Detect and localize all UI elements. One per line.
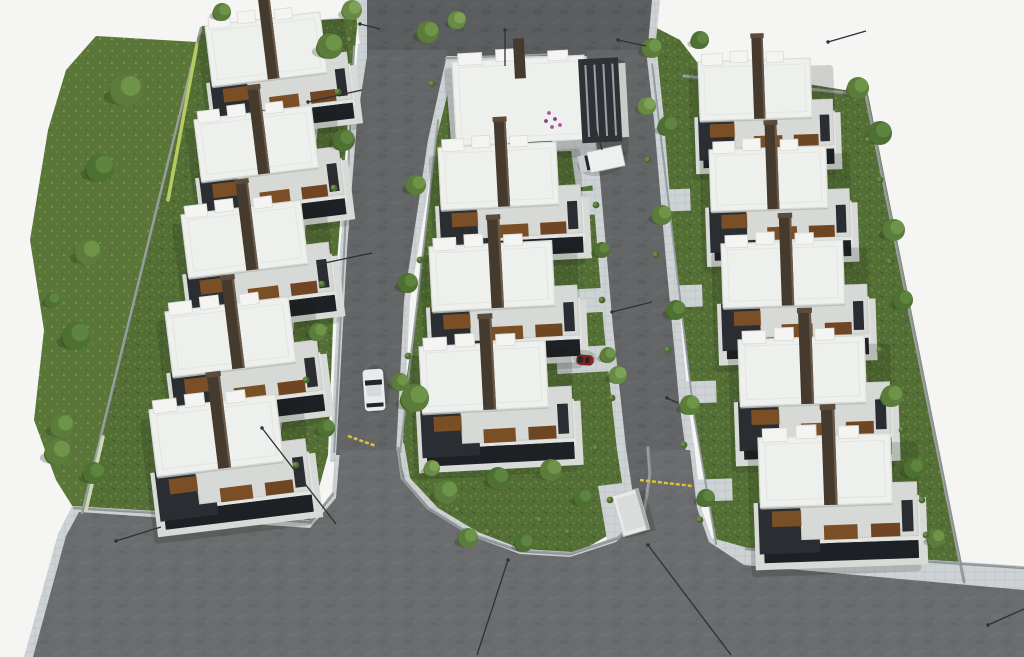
shrub — [609, 395, 616, 402]
top-road-shade — [367, 0, 652, 56]
tree-canopy-highlight — [547, 460, 561, 474]
roof-box — [762, 428, 787, 442]
shrub-highlight — [593, 445, 597, 449]
side-window — [853, 301, 864, 330]
tree-canopy-highlight — [72, 324, 89, 341]
roof-box — [464, 234, 483, 247]
shrub-highlight — [877, 347, 881, 351]
shrub — [537, 517, 544, 524]
tree-canopy-highlight — [615, 367, 626, 378]
shrub-highlight — [923, 532, 927, 536]
roof-box — [168, 300, 192, 315]
chimney-cap — [492, 116, 506, 122]
side-window — [820, 114, 830, 141]
tree-canopy-highlight — [911, 459, 923, 471]
lamp-head — [616, 38, 619, 41]
shrub — [919, 497, 926, 504]
tree-canopy-highlight — [580, 490, 591, 501]
tree-canopy-highlight — [933, 530, 944, 541]
roof-box — [227, 104, 246, 118]
lamp-head — [826, 40, 829, 43]
shrub-highlight — [485, 529, 489, 533]
shrub — [645, 157, 652, 164]
chimney-cap — [763, 120, 777, 125]
shrub-highlight — [319, 281, 323, 285]
roof-box — [742, 138, 760, 150]
roof-box — [730, 51, 747, 63]
tree-canopy-highlight — [854, 78, 868, 92]
tree-canopy-highlight — [454, 12, 465, 23]
tree-canopy-highlight — [96, 156, 113, 173]
side-window — [557, 403, 569, 433]
shrub — [565, 529, 572, 536]
render-viewport — [0, 0, 1024, 657]
roof-box — [455, 333, 475, 347]
roof-box — [253, 196, 273, 209]
tree-canopy-highlight — [54, 441, 70, 457]
tree-canopy-highlight — [599, 243, 609, 253]
roof-box — [433, 237, 457, 251]
roof-box — [237, 10, 256, 24]
shrub-highlight — [293, 462, 297, 466]
tree-canopy-highlight — [900, 291, 912, 303]
shrub-highlight — [331, 185, 335, 189]
wood-panel — [824, 524, 858, 540]
tree-canopy-highlight — [219, 4, 230, 15]
wood-panel — [433, 416, 462, 432]
shrub-highlight — [887, 259, 891, 263]
roof-box — [214, 198, 234, 212]
roof-box — [423, 337, 447, 351]
tree-canopy-highlight — [340, 130, 354, 144]
roof-box — [152, 398, 177, 414]
roof-box — [796, 425, 817, 439]
shrub — [865, 137, 872, 144]
shrub — [303, 377, 310, 384]
lamp-head — [665, 396, 668, 399]
wood-panel — [751, 409, 779, 425]
roof-box — [442, 139, 465, 152]
lamp-head — [306, 100, 309, 103]
flower-planting — [547, 111, 551, 115]
roof-box — [713, 141, 735, 154]
tree-canopy-highlight — [697, 32, 708, 43]
shrub — [347, 37, 354, 44]
flower-planting — [544, 119, 548, 123]
wood-panel — [721, 214, 747, 229]
lamp-head — [260, 426, 263, 429]
roof-box — [197, 109, 220, 124]
shrub — [417, 257, 424, 264]
shrub — [331, 185, 338, 192]
shrub — [593, 445, 600, 452]
flower-planting — [553, 117, 557, 121]
tree-canopy-highlight — [687, 396, 699, 408]
tree-canopy-highlight — [703, 490, 714, 501]
lamp-head — [591, 117, 594, 120]
shrub-highlight — [417, 257, 421, 261]
shrub — [319, 281, 326, 288]
shrub-highlight — [347, 37, 351, 41]
tree-canopy-highlight — [429, 461, 439, 471]
roof-box — [495, 49, 516, 62]
side-window — [901, 500, 913, 532]
tree-canopy-highlight — [315, 324, 326, 335]
shrub — [293, 462, 300, 469]
wood-panel — [772, 510, 802, 527]
tree-canopy-highlight — [323, 420, 334, 431]
tree-canopy-highlight — [90, 463, 104, 477]
shrub-highlight — [607, 497, 611, 501]
shrub — [681, 442, 688, 449]
roof-box — [756, 232, 775, 245]
roof-box — [780, 139, 798, 151]
side-window — [836, 205, 847, 233]
shrub-highlight — [303, 377, 307, 381]
lamp-head — [318, 262, 321, 265]
wood-panel — [535, 323, 563, 337]
shrub-highlight — [537, 517, 541, 521]
wood-panel — [483, 428, 516, 444]
roof-box — [774, 327, 794, 341]
shrub-highlight — [565, 529, 569, 533]
wood-panel — [528, 426, 556, 440]
tree-canopy-highlight — [890, 220, 904, 234]
roof-box — [239, 292, 259, 306]
roof-box — [184, 392, 205, 407]
shrub-highlight — [919, 497, 923, 501]
chimney-cap — [797, 307, 812, 313]
side-window — [563, 302, 575, 332]
shrub — [665, 347, 672, 354]
car-roof — [366, 382, 382, 397]
chimney-cap — [778, 213, 793, 219]
shrub-highlight — [665, 347, 669, 351]
tree-canopy-highlight — [605, 348, 615, 358]
lamp-head — [503, 28, 506, 31]
tree-canopy-highlight — [665, 117, 677, 129]
wood-panel — [540, 221, 567, 234]
lamp-head — [646, 543, 649, 546]
tree-canopy-highlight — [413, 176, 425, 188]
lamp-head — [114, 539, 117, 542]
shrub-highlight — [877, 177, 881, 181]
roof-box — [766, 51, 783, 62]
shrub-highlight — [899, 427, 903, 431]
chimney-cap — [750, 33, 763, 38]
tree-canopy-highlight — [349, 1, 361, 13]
shrub-highlight — [645, 157, 649, 161]
tree-canopy-highlight — [673, 301, 685, 313]
flower-planting — [558, 123, 562, 127]
roof-box — [838, 426, 859, 439]
roof-box — [742, 330, 766, 344]
tree-canopy-highlight — [465, 529, 477, 541]
shrub — [607, 497, 614, 504]
wood-panel — [710, 123, 735, 137]
shrub — [877, 347, 884, 354]
roof-box — [503, 234, 522, 246]
roof-box — [458, 52, 483, 65]
tree-canopy-highlight — [58, 416, 73, 431]
chimney-cap — [486, 214, 501, 220]
shrub-highlight — [405, 353, 409, 357]
tree-canopy-highlight — [49, 293, 59, 303]
tree-canopy-highlight — [397, 374, 408, 385]
lamp-head — [358, 22, 361, 25]
tree-canopy-highlight — [424, 22, 438, 36]
roof-box — [184, 204, 208, 219]
roof-box — [509, 135, 528, 147]
shrub — [899, 427, 906, 434]
tree-canopy-highlight — [121, 76, 141, 96]
shrub-highlight — [681, 442, 685, 446]
roof-box — [795, 233, 814, 245]
tree-canopy-highlight — [659, 206, 671, 218]
shrub — [887, 259, 894, 266]
tree-canopy-highlight — [521, 535, 532, 546]
shrub-highlight — [609, 395, 613, 399]
wood-panel — [443, 314, 471, 330]
tree-canopy-highlight — [326, 35, 342, 51]
wood-panel — [734, 311, 761, 326]
site-plan-canvas — [0, 0, 1024, 657]
tree-canopy-highlight — [442, 482, 457, 497]
shrub-highlight — [697, 517, 701, 521]
tree-canopy-highlight — [876, 123, 891, 138]
tree-canopy-highlight — [411, 386, 428, 403]
shrub — [593, 202, 600, 209]
roof-box — [702, 54, 723, 66]
shrub — [599, 297, 606, 304]
shrub — [455, 507, 462, 514]
shrub-highlight — [593, 202, 597, 206]
shrub — [429, 81, 436, 88]
shrub — [877, 177, 884, 184]
chimney-cap — [820, 404, 836, 410]
shrub — [405, 353, 412, 360]
roof-box — [495, 333, 515, 346]
lamp-head — [986, 623, 989, 626]
shrub-highlight — [865, 137, 869, 141]
wood-panel — [871, 523, 901, 537]
office-chimney — [513, 38, 526, 79]
shrub — [697, 517, 704, 524]
wood-panel — [451, 212, 478, 227]
tree-canopy-highlight — [84, 241, 100, 257]
flower-planting — [550, 125, 554, 129]
roof-box — [471, 135, 490, 148]
roof-box — [274, 7, 293, 20]
roof-box — [815, 328, 835, 340]
shrub-highlight — [653, 252, 657, 256]
tree-canopy-highlight — [888, 386, 902, 400]
shrub — [485, 529, 492, 536]
lamp-head — [506, 558, 509, 561]
roof-box — [199, 295, 219, 310]
shrub-highlight — [335, 89, 339, 93]
shrub-highlight — [429, 81, 433, 85]
roof-box — [264, 101, 283, 114]
tree-canopy-highlight — [644, 98, 655, 109]
roof-box — [548, 50, 568, 61]
tree-canopy-highlight — [494, 468, 508, 482]
shrub — [923, 532, 930, 539]
tree-canopy-highlight — [405, 274, 417, 286]
tree-canopy-highlight — [649, 39, 661, 51]
lamp-head — [610, 310, 613, 313]
chimney-cap — [477, 313, 492, 319]
shrub-highlight — [599, 297, 603, 301]
shrub-highlight — [455, 507, 459, 511]
shrub — [653, 252, 660, 259]
roof-box — [725, 235, 748, 248]
side-window — [567, 201, 578, 229]
roof-box — [225, 390, 246, 404]
